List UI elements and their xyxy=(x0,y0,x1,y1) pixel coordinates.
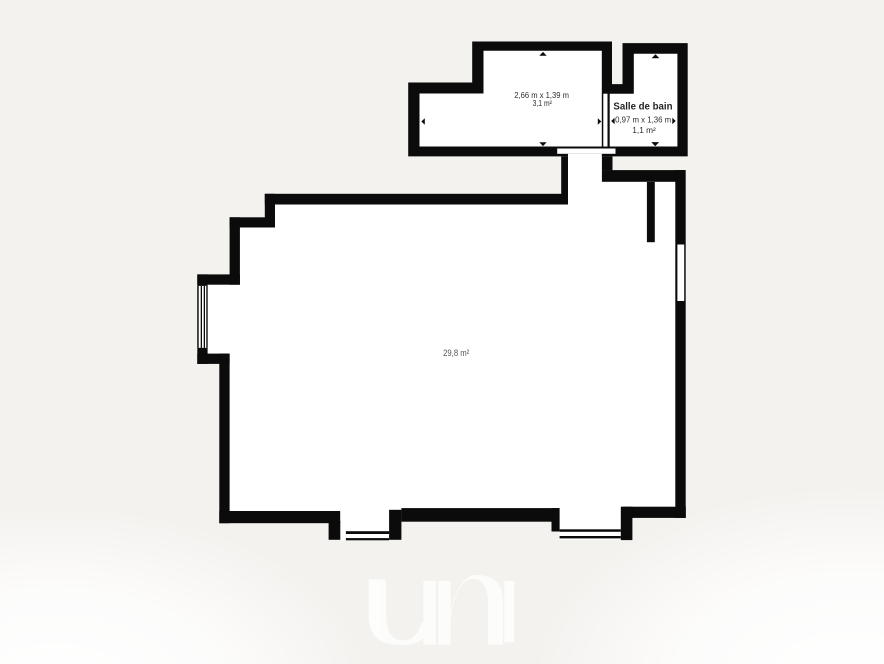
svg-text:0,97 m x 1,36 m: 0,97 m x 1,36 m xyxy=(615,115,671,124)
svg-text:3,1 m²: 3,1 m² xyxy=(533,99,553,108)
svg-text:Salle de bain: Salle de bain xyxy=(613,102,672,113)
svg-text:1,1 m²: 1,1 m² xyxy=(632,126,656,135)
svg-text:29,8 m²: 29,8 m² xyxy=(443,348,469,358)
